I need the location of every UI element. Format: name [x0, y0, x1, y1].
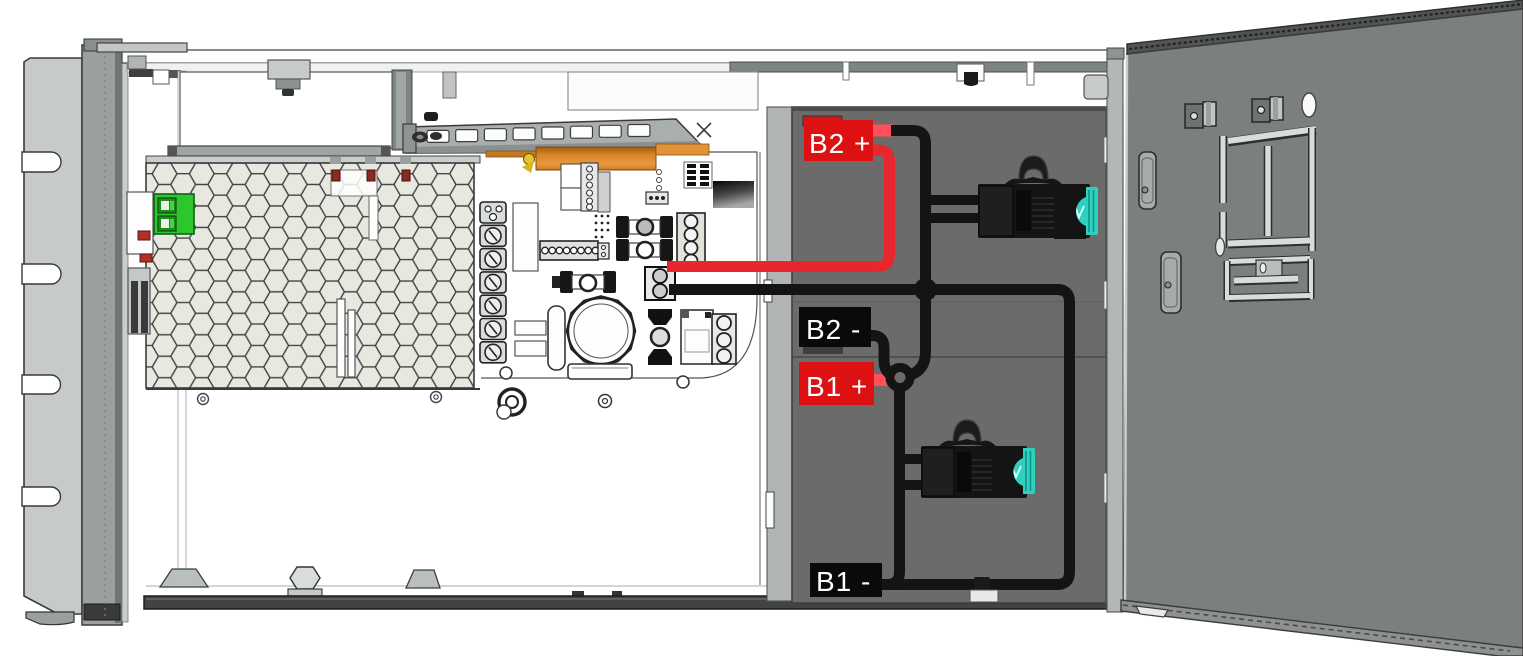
svg-text:B2 +: B2 +: [809, 128, 871, 159]
svg-text:B1 -: B1 -: [816, 566, 871, 597]
svg-text:B2 -: B2 -: [806, 314, 861, 345]
svg-text:B1 +: B1 +: [806, 371, 868, 402]
